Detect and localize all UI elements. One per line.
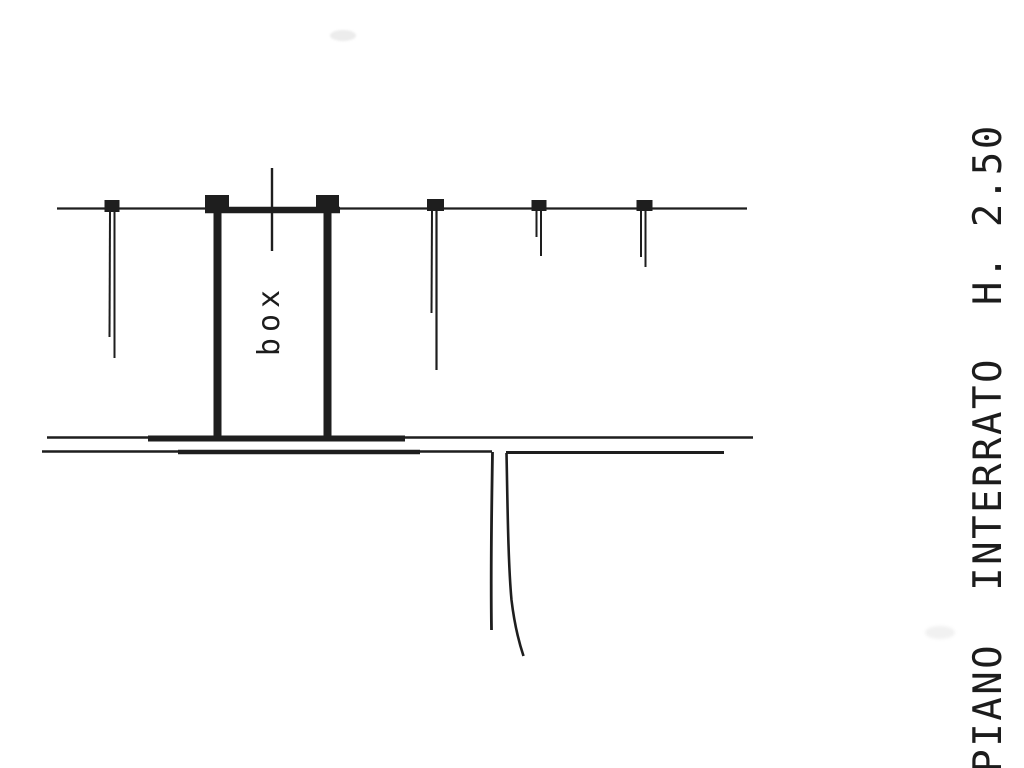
partition-cap-2 <box>427 199 444 211</box>
partition-cap-4 <box>637 200 653 211</box>
driveway-left-jamb-line <box>491 452 492 630</box>
box-left-wall-cap <box>205 195 229 210</box>
driveway-right-jamb-curve <box>507 453 524 656</box>
partition-cap-3 <box>532 200 547 211</box>
box-right-wall <box>324 208 332 439</box>
partition-cap-1 <box>105 200 120 212</box>
plan-title-piano-interrato: PIANO INTERRATO H. 2.50 <box>969 116 1013 768</box>
partition-2-line-a <box>432 211 433 313</box>
plan-linework <box>0 0 1024 768</box>
box-left-wall <box>214 208 222 439</box>
partition-1-line-a <box>110 212 111 337</box>
room-label-box: box <box>255 270 289 370</box>
box-right-wall-cap <box>316 195 339 210</box>
floor-plan-canvas: box PIANO INTERRATO H. 2.50 <box>0 0 1024 768</box>
